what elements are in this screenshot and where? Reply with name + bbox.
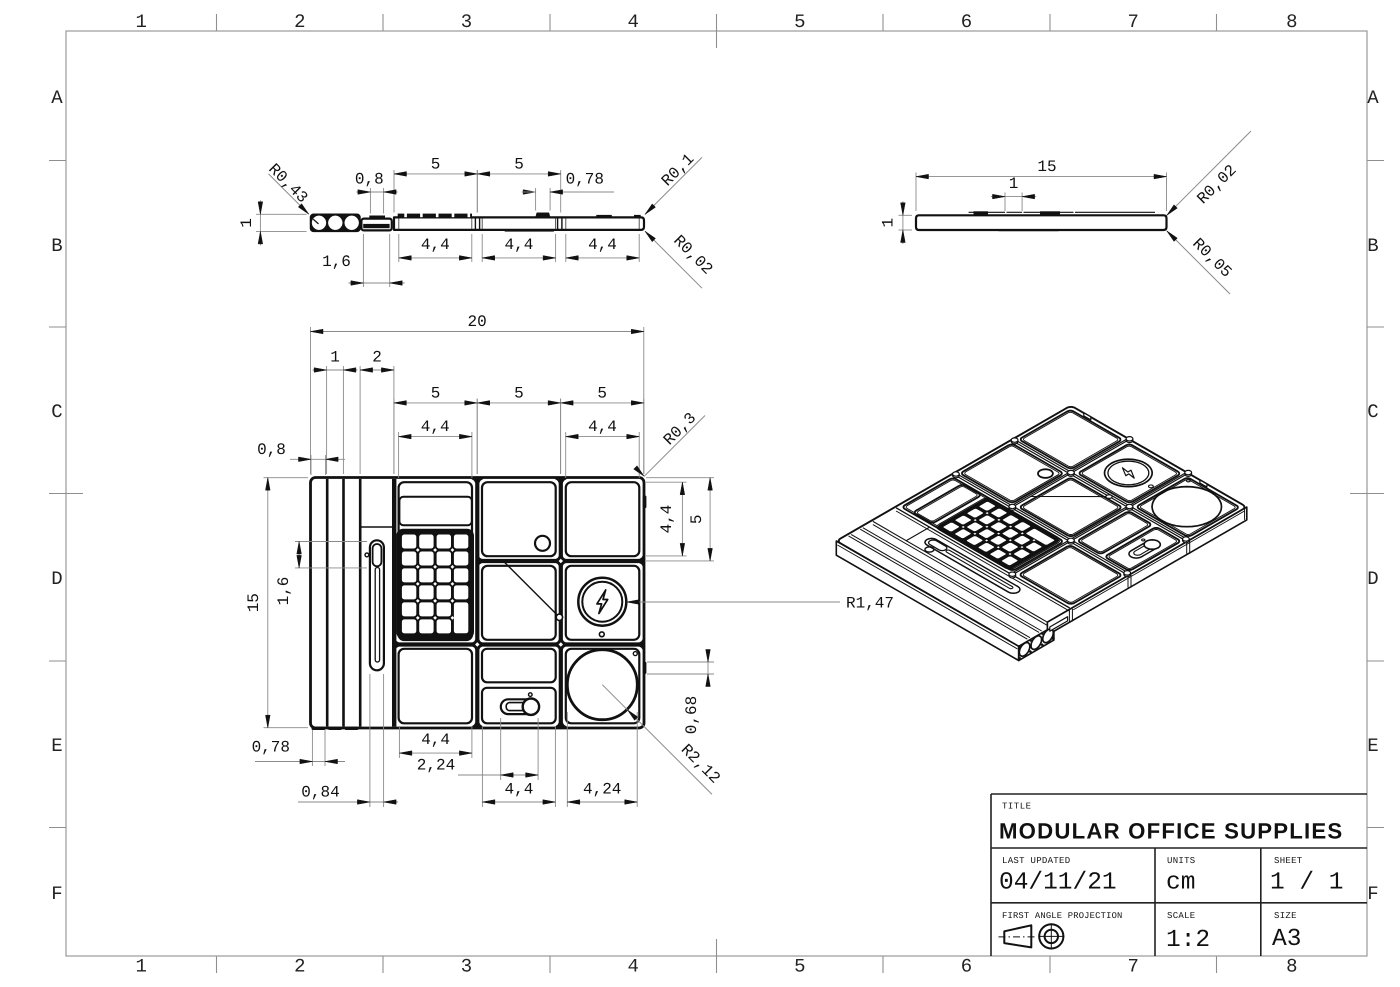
- svg-text:1: 1: [330, 349, 340, 367]
- svg-text:C: C: [51, 401, 62, 423]
- svg-text:SIZE: SIZE: [1274, 911, 1297, 921]
- svg-text:5: 5: [794, 956, 805, 978]
- svg-text:SCALE: SCALE: [1167, 911, 1196, 921]
- svg-text:15: 15: [1037, 158, 1056, 176]
- svg-text:4: 4: [627, 11, 638, 33]
- svg-text:2,24: 2,24: [417, 757, 455, 775]
- svg-text:4: 4: [627, 956, 638, 978]
- svg-text:7: 7: [1127, 11, 1138, 33]
- svg-text:2: 2: [294, 956, 305, 978]
- svg-text:4,4: 4,4: [658, 505, 676, 534]
- svg-text:A: A: [1367, 87, 1379, 109]
- svg-text:F: F: [51, 883, 62, 905]
- svg-text:0,78: 0,78: [566, 171, 604, 189]
- svg-text:4,4: 4,4: [504, 236, 533, 254]
- svg-text:6: 6: [961, 956, 972, 978]
- svg-text:E: E: [1367, 735, 1378, 757]
- svg-text:4,4: 4,4: [588, 418, 617, 436]
- svg-text:1: 1: [135, 956, 146, 978]
- svg-text:F: F: [1367, 883, 1378, 905]
- svg-text:LAST UPDATED: LAST UPDATED: [1002, 856, 1070, 866]
- svg-text:5: 5: [794, 11, 805, 33]
- svg-text:D: D: [1367, 568, 1378, 590]
- svg-text:1:2: 1:2: [1166, 927, 1210, 954]
- svg-text:C: C: [1367, 401, 1378, 423]
- svg-text:15: 15: [245, 593, 263, 612]
- svg-text:FIRST ANGLE PROJECTION: FIRST ANGLE PROJECTION: [1002, 911, 1123, 921]
- svg-text:5: 5: [431, 384, 441, 402]
- svg-text:D: D: [51, 568, 62, 590]
- svg-text:1: 1: [1009, 175, 1019, 193]
- svg-text:4,4: 4,4: [504, 781, 533, 799]
- svg-text:SHEET: SHEET: [1274, 856, 1303, 866]
- svg-text:4,24: 4,24: [583, 781, 621, 799]
- svg-text:0,8: 0,8: [257, 441, 286, 459]
- svg-text:3: 3: [461, 956, 472, 978]
- svg-text:cm: cm: [1166, 870, 1195, 897]
- svg-text:2: 2: [294, 11, 305, 33]
- svg-text:TITLE: TITLE: [1002, 802, 1032, 812]
- svg-text:8: 8: [1286, 956, 1297, 978]
- svg-text:5: 5: [431, 155, 441, 173]
- svg-text:2: 2: [372, 349, 382, 367]
- svg-text:B: B: [51, 235, 62, 257]
- svg-text:1,6: 1,6: [275, 577, 293, 606]
- svg-text:20: 20: [467, 313, 486, 331]
- svg-text:A3: A3: [1272, 926, 1301, 953]
- svg-text:1,6: 1,6: [322, 253, 351, 271]
- svg-text:04/11/21: 04/11/21: [999, 870, 1117, 897]
- svg-text:E: E: [51, 735, 62, 757]
- svg-text:1: 1: [238, 218, 256, 228]
- svg-text:5: 5: [514, 384, 524, 402]
- svg-text:4,4: 4,4: [588, 236, 617, 254]
- svg-text:0,8: 0,8: [355, 171, 384, 189]
- svg-text:6: 6: [961, 11, 972, 33]
- svg-text:4,4: 4,4: [421, 236, 450, 254]
- svg-text:A: A: [51, 87, 63, 109]
- svg-text:0,78: 0,78: [252, 739, 290, 757]
- svg-text:0,68: 0,68: [683, 696, 701, 734]
- svg-text:MODULAR OFFICE SUPPLIES: MODULAR OFFICE SUPPLIES: [999, 819, 1343, 844]
- svg-text:5: 5: [597, 384, 607, 402]
- svg-text:1 / 1: 1 / 1: [1270, 870, 1344, 897]
- svg-text:4,4: 4,4: [421, 418, 450, 436]
- svg-text:0,84: 0,84: [301, 784, 339, 802]
- svg-text:UNITS: UNITS: [1167, 856, 1196, 866]
- svg-text:B: B: [1367, 235, 1378, 257]
- svg-text:7: 7: [1127, 956, 1138, 978]
- svg-text:3: 3: [461, 11, 472, 33]
- svg-text:1: 1: [879, 218, 897, 228]
- svg-text:4,4: 4,4: [421, 731, 450, 749]
- svg-text:5: 5: [688, 514, 706, 524]
- svg-text:1: 1: [135, 11, 146, 33]
- svg-text:R1,47: R1,47: [846, 595, 894, 613]
- svg-text:5: 5: [514, 155, 524, 173]
- svg-text:8: 8: [1286, 11, 1297, 33]
